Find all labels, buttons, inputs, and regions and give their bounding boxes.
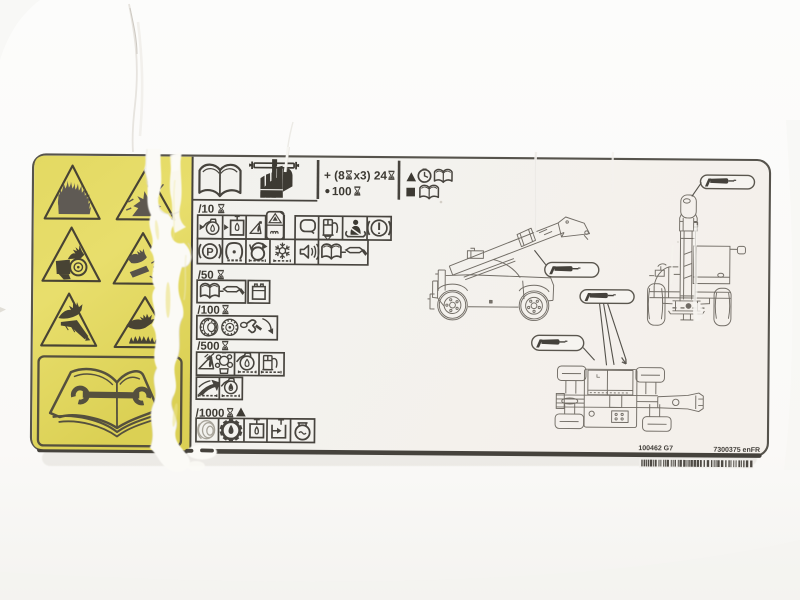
svg-text:100462 G7: 100462 G7	[638, 445, 673, 452]
svg-text:7300375 enFR: 7300375 enFR	[713, 447, 760, 454]
svg-text:/10: /10	[198, 204, 214, 216]
svg-text:+ (8: + (8	[324, 168, 345, 182]
svg-text:100: 100	[332, 184, 352, 198]
svg-text:/500: /500	[197, 341, 219, 353]
svg-text:x3) 24: x3) 24	[353, 168, 387, 182]
svg-text:P: P	[206, 246, 213, 258]
